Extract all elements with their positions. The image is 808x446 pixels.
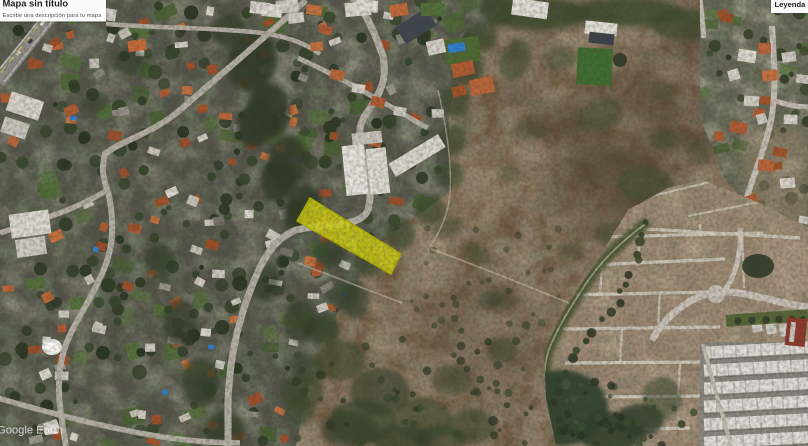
svg-text:Escribe una descripción para t: Escribe una descripción para tu mapa bbox=[3, 13, 103, 19]
svg-text:Google Earth: Google Earth bbox=[0, 425, 63, 437]
svg-text:Leyenda: Leyenda bbox=[775, 0, 807, 9]
svg-text:Mapa sin título: Mapa sin título bbox=[3, 0, 69, 9]
